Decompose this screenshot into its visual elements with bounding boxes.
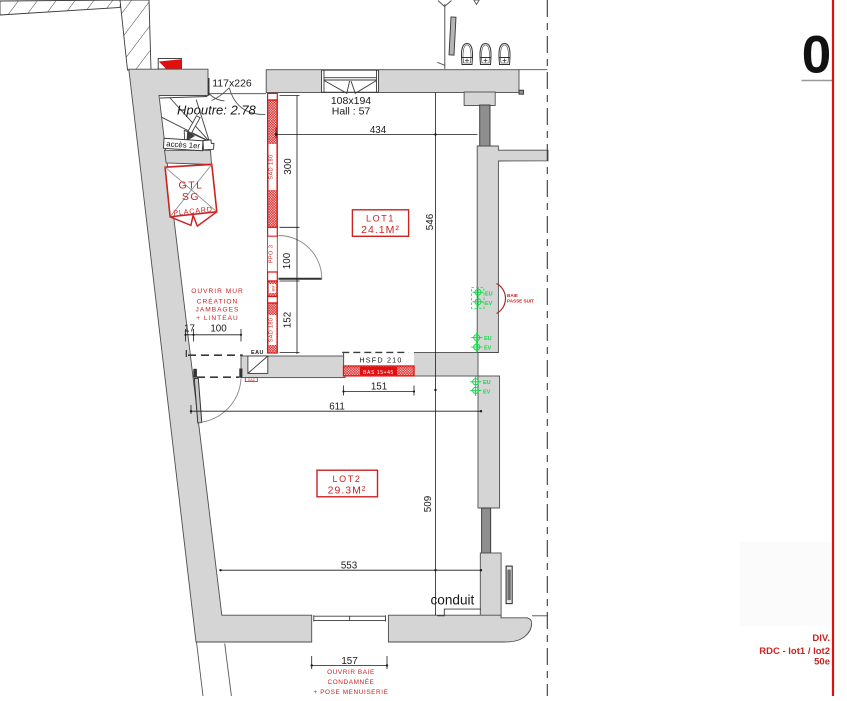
svg-text:100: 100 xyxy=(282,252,293,269)
svg-text:CONDAMNÉE: CONDAMNÉE xyxy=(328,677,375,686)
svg-text:SAD 180: SAD 180 xyxy=(269,318,275,343)
svg-text:157: 157 xyxy=(341,656,357,667)
svg-text:EU: EU xyxy=(484,336,492,342)
svg-text:conduit: conduit xyxy=(431,593,475,608)
svg-text:LOT1: LOT1 xyxy=(366,214,395,224)
svg-text:611: 611 xyxy=(329,402,345,413)
svg-text:BAS 15+45: BAS 15+45 xyxy=(363,370,394,376)
svg-text:17: 17 xyxy=(184,324,195,335)
svg-text:29.3M²: 29.3M² xyxy=(328,485,367,497)
svg-text:+ LINTEAU: + LINTEAU xyxy=(196,315,239,322)
svg-text:546: 546 xyxy=(425,213,436,230)
svg-text:BM: BM xyxy=(270,286,275,292)
svg-text:BAIE: BAIE xyxy=(507,293,518,298)
svg-text:0: 0 xyxy=(802,26,831,85)
svg-text:434: 434 xyxy=(370,125,387,136)
svg-text:PASSE SUIT: PASSE SUIT xyxy=(507,299,534,304)
svg-text:OUVRIR BAIE: OUVRIR BAIE xyxy=(327,669,375,676)
svg-text:PPO 3: PPO 3 xyxy=(269,245,275,263)
svg-text:SG: SG xyxy=(182,191,200,203)
svg-text:DIV.: DIV. xyxy=(812,633,830,644)
svg-text:EU: EU xyxy=(485,292,493,298)
svg-text:50e: 50e xyxy=(814,657,830,668)
svg-text:Hall : 57: Hall : 57 xyxy=(332,106,371,118)
svg-text:RDC - lot1 / lot2: RDC - lot1 / lot2 xyxy=(759,646,830,657)
svg-text:EAU: EAU xyxy=(251,350,264,356)
svg-text:117x226: 117x226 xyxy=(212,78,252,90)
svg-text:OUVRIR MUR: OUVRIR MUR xyxy=(191,288,244,295)
svg-text:EV: EV xyxy=(484,345,492,351)
svg-text:SAD 180: SAD 180 xyxy=(269,154,275,179)
svg-text:EV: EV xyxy=(483,390,491,396)
svg-text:JAMBAGES: JAMBAGES xyxy=(196,307,240,314)
svg-text:300: 300 xyxy=(283,158,294,175)
svg-text:553: 553 xyxy=(341,561,358,572)
svg-text:151: 151 xyxy=(371,382,387,393)
svg-text:+ POSE MENUISERIE: + POSE MENUISERIE xyxy=(313,689,388,696)
svg-text:GTL: GTL xyxy=(179,180,204,192)
svg-text:24.1M²: 24.1M² xyxy=(361,224,400,236)
svg-text:HSFD 210: HSFD 210 xyxy=(359,356,402,365)
svg-text:152: 152 xyxy=(283,312,294,328)
svg-text:509: 509 xyxy=(423,496,434,512)
svg-text:GAZ: GAZ xyxy=(248,378,255,382)
svg-text:LOT2: LOT2 xyxy=(333,474,362,484)
svg-text:EU: EU xyxy=(483,380,491,386)
svg-text:Hpoutre: 2.78: Hpoutre: 2.78 xyxy=(177,103,257,118)
svg-text:100: 100 xyxy=(210,324,227,335)
svg-text:CRÉATION: CRÉATION xyxy=(197,296,239,305)
svg-text:EV: EV xyxy=(485,301,493,307)
